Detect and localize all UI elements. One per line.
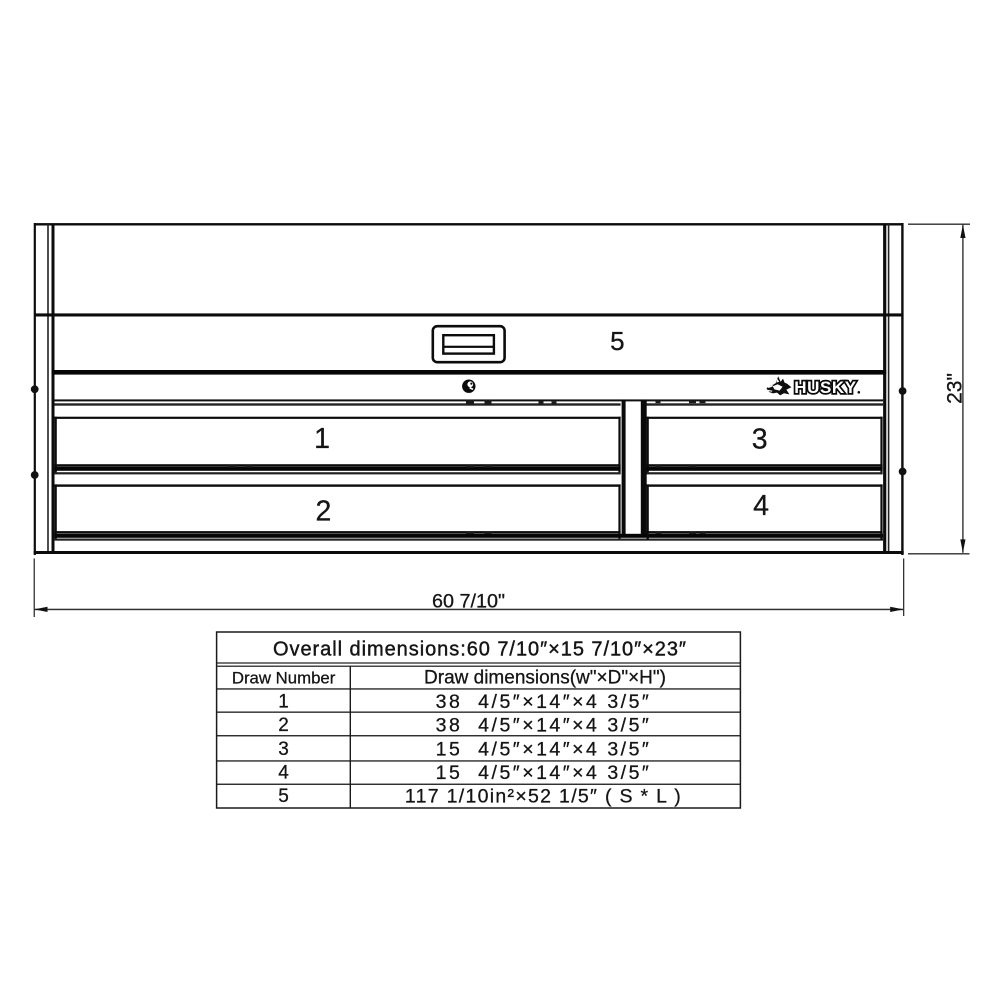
svg-text:Overall dimensions:60 7/10″×15: Overall dimensions:60 7/10″×15 7/10″×23″ <box>273 639 687 661</box>
svg-text:23": 23" <box>943 373 966 404</box>
svg-text:5: 5 <box>610 326 624 356</box>
svg-text:15 4/5″×14″×4 3/5″: 15 4/5″×14″×4 3/5″ <box>436 762 652 784</box>
svg-text:38 4/5″×14″×4 3/5″: 38 4/5″×14″×4 3/5″ <box>436 714 652 736</box>
svg-text:3: 3 <box>752 423 768 455</box>
svg-text:60 7/10": 60 7/10" <box>432 591 505 613</box>
svg-text:38 4/5″×14″×4 3/5″: 38 4/5″×14″×4 3/5″ <box>436 691 652 713</box>
svg-text:117 1/10in²×52 1/5″ ( S * L ): 117 1/10in²×52 1/5″ ( S * L ) <box>405 785 682 807</box>
svg-text:Draw Number: Draw Number <box>232 668 336 687</box>
svg-text:HUSKY: HUSKY <box>794 378 857 397</box>
svg-text:2: 2 <box>278 715 289 736</box>
svg-text:4: 4 <box>753 490 769 522</box>
svg-text:1: 1 <box>278 692 289 713</box>
svg-text:5: 5 <box>278 786 289 807</box>
svg-text:Draw dimensions(w"×D"×H"): Draw dimensions(w"×D"×H") <box>424 667 666 688</box>
svg-text:4: 4 <box>278 763 289 784</box>
svg-text:3: 3 <box>278 739 289 760</box>
svg-text:15 4/5″×14″×4 3/5″: 15 4/5″×14″×4 3/5″ <box>436 738 652 760</box>
svg-text:1: 1 <box>314 423 330 455</box>
svg-text:2: 2 <box>315 496 331 528</box>
